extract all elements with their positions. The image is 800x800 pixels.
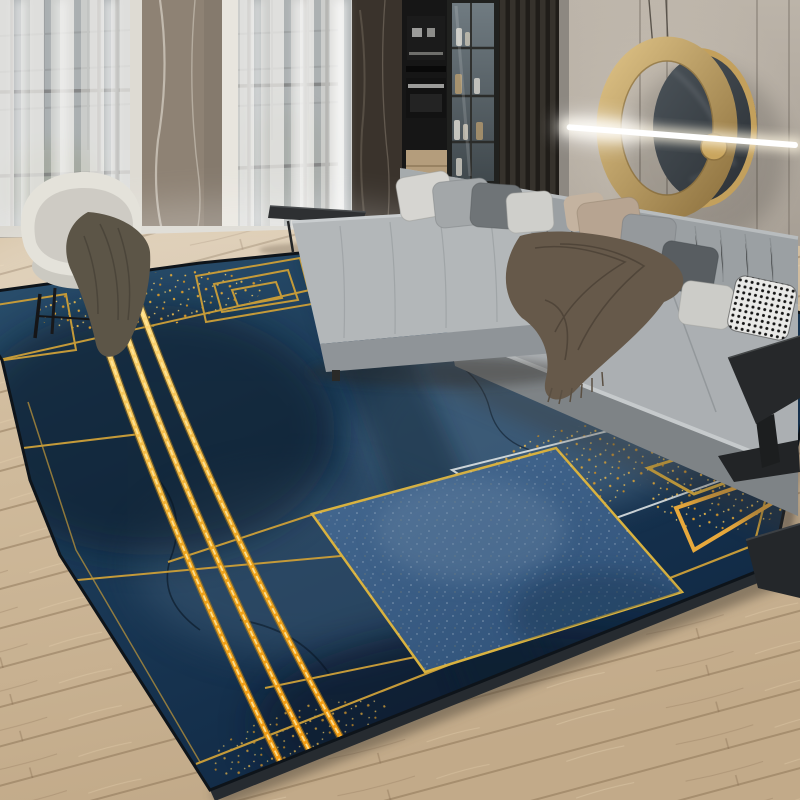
pillow-white [677,280,735,331]
scene-canvas [0,0,800,800]
pillow-dotted [726,274,798,342]
pillow-white [506,190,555,233]
living-room-photo [0,0,800,800]
